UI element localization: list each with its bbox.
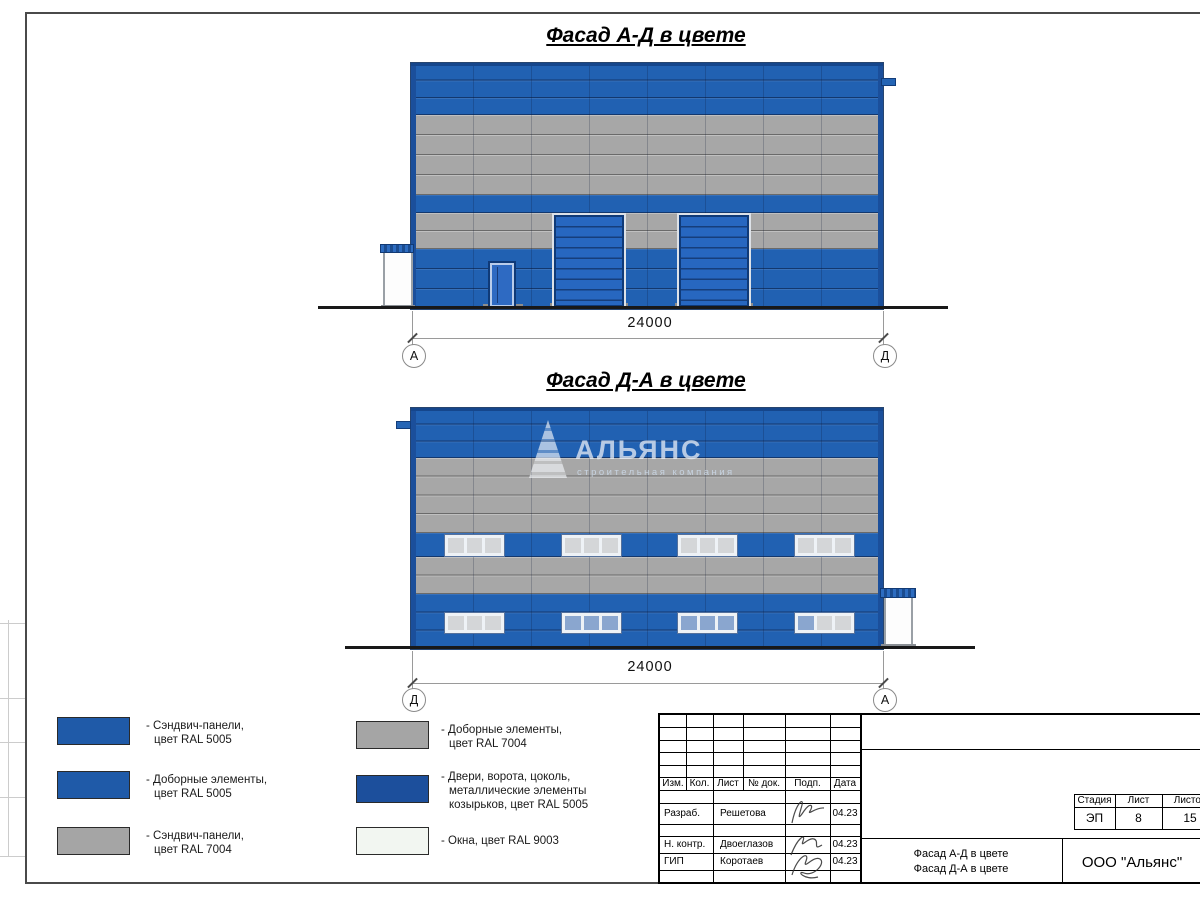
legend-label: - Сэндвич-панели, цвет RAL 7004	[146, 829, 244, 857]
tb-role: ГИП	[660, 853, 717, 870]
roof-tab	[396, 421, 411, 429]
canopy-roof	[880, 588, 916, 598]
window-pane	[485, 616, 501, 630]
tb-stage-label: Стадия	[1074, 794, 1115, 807]
legend-line: цвет RAL 7004	[449, 737, 562, 751]
legend-swatch	[356, 775, 429, 803]
tb-col-podp: Подп.	[785, 777, 830, 790]
window	[794, 534, 855, 557]
legend-swatch	[57, 771, 130, 799]
roof-coping	[411, 408, 883, 411]
legend-line: - Окна, цвет RAL 9003	[441, 827, 559, 855]
window-pane	[798, 538, 814, 553]
axis-marker-a: А	[873, 688, 897, 712]
legend-label: - Доборные элементы, цвет RAL 5005	[146, 773, 267, 801]
watermark-logo-text: АЛЬЯНС	[575, 435, 703, 466]
frame-side-table	[8, 620, 9, 856]
window-pane	[700, 538, 716, 553]
tb-col-list: Лист	[713, 777, 743, 790]
legend-line: металлические элементы	[449, 784, 588, 798]
legend-label: - Двери, ворота, цоколь, металлические э…	[441, 770, 588, 812]
signature	[786, 793, 830, 829]
dimension-label: 24000	[560, 315, 740, 331]
window-pane	[565, 616, 581, 630]
frame-side-divider	[0, 797, 25, 798]
window	[561, 534, 622, 557]
tb-role: Разраб.	[660, 803, 717, 824]
corner-trim	[878, 408, 883, 649]
tb-company: ООО "Альянс"	[1062, 838, 1200, 884]
window	[677, 534, 738, 557]
legend-label: - Доборные элементы, цвет RAL 7004	[441, 723, 562, 751]
window-pane	[565, 538, 581, 553]
tb-doc-title-line: Фасад А-Д в цвете	[914, 847, 1009, 862]
facade1-title: Фасад А-Д в цвете	[410, 24, 882, 48]
gate-door-2	[679, 215, 749, 307]
window	[444, 534, 505, 557]
window-pane	[681, 538, 697, 553]
tb-role: Н. контр.	[660, 836, 717, 853]
tb-col-izm: Изм.	[660, 777, 686, 790]
axis-marker-a: А	[402, 344, 426, 368]
legend-swatch	[356, 721, 429, 749]
window-pane	[718, 616, 734, 630]
legend-line: цвет RAL 5005	[154, 733, 244, 747]
window-pane	[681, 616, 697, 630]
facade2-title: Фасад Д-А в цвете	[410, 369, 882, 393]
gate-door-1	[554, 215, 624, 307]
tb-col-ndok: № док.	[743, 777, 785, 790]
frame-side-divider	[0, 698, 25, 699]
window-pane	[718, 538, 734, 553]
facade-a-d-drawing	[410, 62, 884, 310]
legend-line: цвет RAL 7004	[154, 843, 244, 857]
dimension-line	[413, 683, 884, 684]
watermark-tagline: строительная компания	[577, 467, 735, 478]
window-pane	[584, 616, 600, 630]
tb-date: 04.23	[830, 803, 860, 824]
title-block: Изм. Кол. Лист № док. Подп. Дата Разраб.…	[658, 713, 1200, 884]
legend-label: - Сэндвич-панели, цвет RAL 5005	[146, 719, 244, 747]
canopy-posts	[383, 253, 413, 305]
tb-name: Коротаев	[716, 853, 789, 870]
frame-side-divider	[0, 856, 25, 857]
window-pane	[602, 538, 618, 553]
legend-line: козырьков, цвет RAL 5005	[449, 798, 588, 812]
roof-coping	[411, 63, 883, 66]
legend-line: - Доборные элементы,	[146, 773, 267, 787]
tb-doc-title: Фасад А-Д в цвете Фасад Д-А в цвете	[860, 838, 1062, 884]
tb-sheets-label: Листов	[1162, 794, 1200, 807]
ground-line	[345, 646, 975, 649]
legend-label: - Окна, цвет RAL 9003	[441, 827, 559, 855]
legend-swatch	[57, 717, 130, 745]
window-pane	[817, 616, 833, 630]
entrance-door	[488, 261, 516, 309]
window-pane	[467, 538, 483, 553]
window-pane	[467, 616, 483, 630]
legend-line: - Сэндвич-панели,	[146, 719, 244, 733]
window	[561, 612, 622, 634]
panel-joints	[416, 63, 878, 309]
canopy-roof	[380, 244, 414, 253]
tb-doc-title-line: Фасад Д-А в цвете	[914, 862, 1009, 877]
legend-line: цвет RAL 5005	[154, 787, 267, 801]
legend-line: - Сэндвич-панели,	[146, 829, 244, 843]
tb-name: Решетова	[716, 803, 789, 824]
window-pane	[448, 616, 464, 630]
window	[794, 612, 855, 634]
dimension-line	[413, 338, 884, 339]
signature	[784, 847, 832, 884]
corner-trim	[878, 63, 883, 309]
frame-side-divider	[0, 623, 25, 624]
axis-marker-d: Д	[402, 688, 426, 712]
window-pane	[448, 538, 464, 553]
tb-col-kol: Кол.	[686, 777, 713, 790]
legend-line: - Доборные элементы,	[441, 723, 562, 737]
tb-sheet-value: 8	[1115, 807, 1162, 829]
window-pane	[835, 616, 851, 630]
frame-side-divider	[0, 742, 25, 743]
ground-line	[318, 306, 948, 309]
window-pane	[700, 616, 716, 630]
tb-sheet-label: Лист	[1115, 794, 1162, 807]
canopy-posts	[884, 598, 913, 644]
tb-sheets-value: 15	[1162, 807, 1200, 829]
tb-date: 04.23	[830, 853, 860, 870]
window-pane	[817, 538, 833, 553]
legend-line: - Двери, ворота, цоколь,	[441, 770, 588, 784]
tb-col-data: Дата	[830, 777, 860, 790]
window-pane	[602, 616, 618, 630]
tb-stage-value: ЭП	[1074, 807, 1115, 829]
door-leaf-split	[497, 267, 498, 303]
roof-tab	[881, 78, 896, 86]
legend-swatch	[356, 827, 429, 855]
window-pane	[798, 616, 814, 630]
window	[444, 612, 505, 634]
axis-marker-d: Д	[873, 344, 897, 368]
window-pane	[584, 538, 600, 553]
tb-name: Двоеглазов	[716, 836, 789, 853]
facade-d-a-drawing: АЛЬЯНС строительная компания	[410, 407, 884, 650]
window	[677, 612, 738, 634]
window-pane	[835, 538, 851, 553]
tb-date: 04.23	[830, 836, 860, 853]
legend-swatch	[57, 827, 130, 855]
window-pane	[485, 538, 501, 553]
dimension-label: 24000	[560, 659, 740, 675]
corner-trim	[411, 408, 416, 649]
